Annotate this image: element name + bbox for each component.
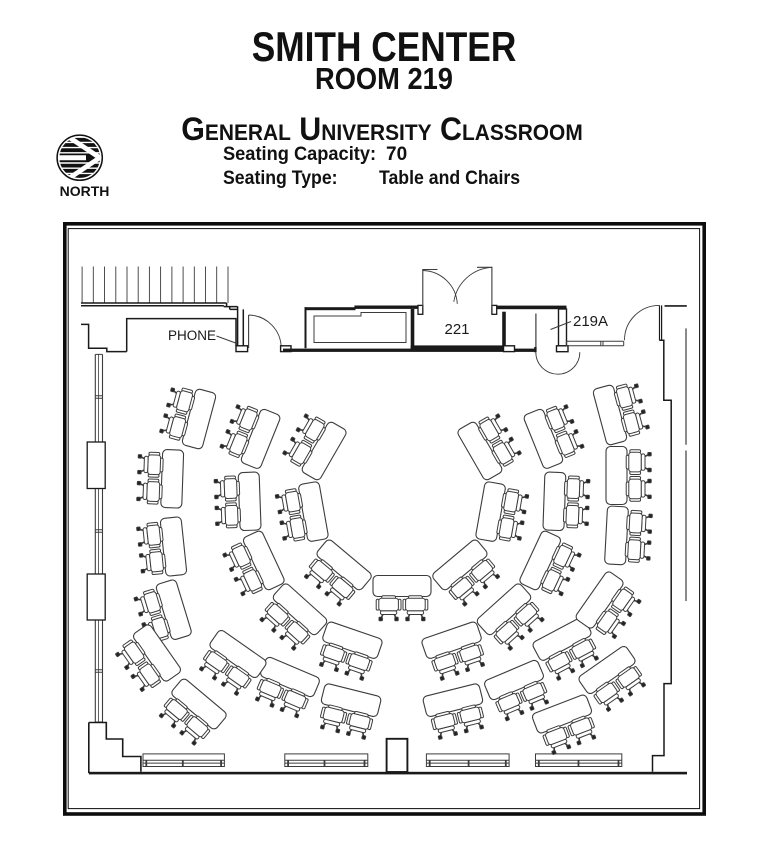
svg-text:221: 221 (444, 321, 469, 338)
svg-text:219A: 219A (573, 313, 608, 330)
svg-text:PHONE: PHONE (168, 328, 216, 343)
